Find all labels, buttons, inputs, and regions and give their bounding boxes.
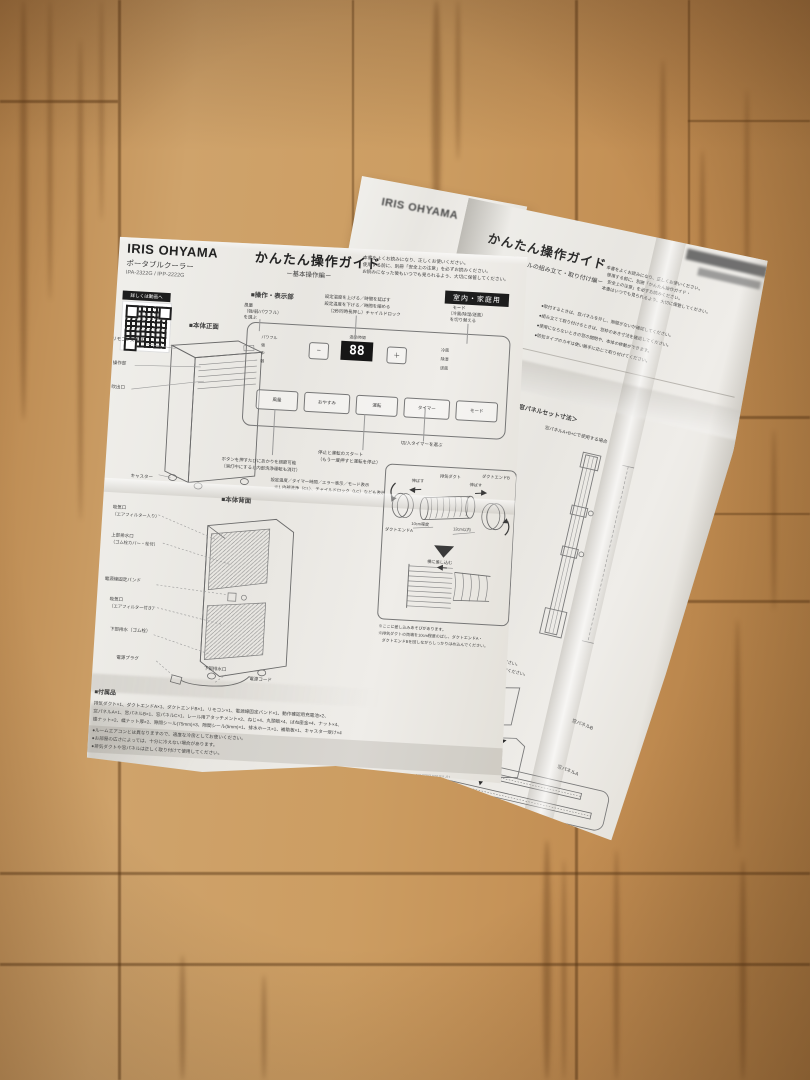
left-sheet: IRIS OHYAMA ポータブルクーラー IPA-2322G / IPP-22… (86, 234, 530, 791)
redacted-header-block (697, 267, 761, 289)
mode-button: モード (455, 400, 498, 422)
temp-down-button: − (308, 342, 329, 360)
mode-lamp: 送風 (440, 363, 448, 372)
mode-lamp: 除湿 (440, 354, 448, 363)
duct-extend-label: 伸ばす (469, 482, 482, 488)
brand-logo: IRIS OHYAMA (380, 196, 459, 224)
duct-dim-label: 10cm程度 (411, 521, 429, 527)
control-panel-diagram: パワフル 強 中 弱 − 温度/時間 88 ＋ 冷風 除湿 送風 風量 おやすみ… (242, 321, 511, 440)
duct-assembly-box: 伸ばす 排気ダクト 伸ばす ダクトエンドB ダクトエンドA 10cm程度 12c… (377, 463, 518, 626)
front-label: 吹出口 (111, 384, 125, 390)
fan-button: 風量 (255, 389, 298, 411)
window-panel-dimension-diagram (491, 433, 664, 662)
duct-extend-label: 伸ばす (412, 478, 425, 484)
model-numbers: IPA-2322G / IPP-2222G (126, 270, 185, 280)
fan-callout: を選ぶ (243, 314, 256, 320)
front-label: キャスター (130, 473, 153, 480)
photo-of-manuals-on-floor: { "back_sheet": { "brand": "IRIS OHYAMA"… (0, 0, 810, 1080)
sleep-button: おやすみ (303, 392, 350, 415)
back-label: 吸気口 (109, 596, 123, 602)
timer-button: タイマー (403, 397, 450, 420)
back-label: 電源コード (249, 676, 272, 683)
duct-dim-label: 12cm以内 (453, 526, 471, 532)
back-label: 電源プラグ (116, 655, 139, 662)
fan-level: 弱 (260, 357, 276, 366)
back-unit-drawing (99, 498, 304, 699)
timer-callout: 切/入タイマーを選ぶ (401, 440, 443, 448)
panel-section-heading: ■操作・表示部 (251, 292, 294, 303)
mode-lamp: 冷風 (441, 345, 449, 354)
dimension-heading: ＜窓パネルセット寸法＞ (512, 403, 578, 425)
front-label: 操作部 (113, 360, 127, 366)
fan-level-list: パワフル 強 中 弱 (260, 333, 278, 366)
qr-finder (158, 307, 172, 321)
mode-callout: を切り替える (450, 317, 476, 324)
mode-lamp-list: 冷風 除湿 送風 (440, 345, 449, 372)
back-label: 下部排水口 (204, 666, 227, 673)
run-button: 運転 (355, 395, 398, 417)
back-label: 吸気口 (113, 504, 127, 510)
temp-up-button: ＋ (386, 346, 407, 364)
duct-name-label: 排気ダクト (440, 473, 461, 479)
guide-subtitle: －基本操作編－ (286, 271, 332, 282)
qr-finder (125, 305, 139, 319)
run-callout: （もう一度押すと運転を停止） (318, 457, 381, 466)
duct-assembly-diagram (378, 464, 516, 625)
back-label: 上部排水口 (111, 532, 134, 539)
temperature-display: 88 (340, 341, 373, 362)
accessories-heading: ■付属品 (94, 690, 116, 699)
